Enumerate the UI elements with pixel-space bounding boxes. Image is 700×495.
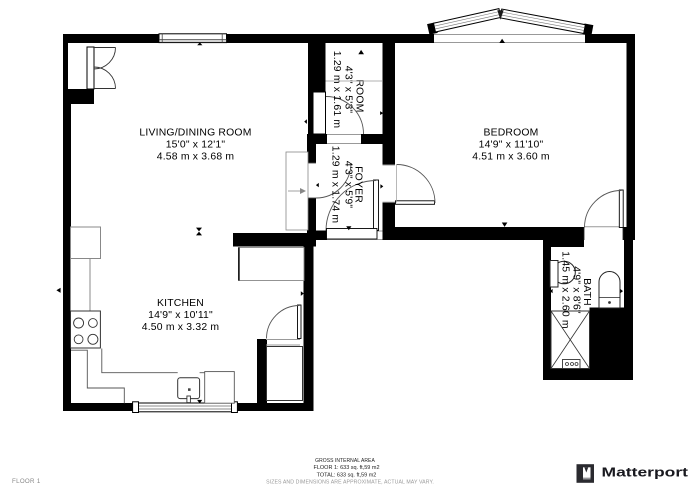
svg-text:4'3" x 5'3": 4'3" x 5'3"	[343, 66, 354, 114]
svg-text:14'9" x 10'11": 14'9" x 10'11"	[148, 310, 213, 321]
svg-text:4'9" x 8'6": 4'9" x 8'6"	[571, 266, 582, 314]
svg-text:4.51 m x 3.60 m: 4.51 m x 3.60 m	[472, 152, 550, 163]
svg-text:FLOOR 1: FLOOR 1	[12, 478, 41, 485]
svg-text:1.45 m x 2.60 m: 1.45 m x 2.60 m	[560, 251, 571, 329]
svg-text:FLOOR 1: 633 sq. ft,59 m2: FLOOR 1: 633 sq. ft,59 m2	[313, 465, 379, 471]
svg-text:ROOM: ROOM	[354, 79, 365, 112]
svg-text:GROSS INTERNAL AREA: GROSS INTERNAL AREA	[315, 458, 375, 464]
svg-text:BATH: BATH	[581, 278, 592, 306]
svg-text:14'9" x 11'10": 14'9" x 11'10"	[479, 140, 544, 151]
svg-text:BEDROOM: BEDROOM	[483, 128, 538, 139]
svg-text:Matterport: Matterport	[602, 465, 690, 479]
svg-text:LIVING/DINING ROOM: LIVING/DINING ROOM	[139, 128, 251, 139]
svg-text:15'0" x 12'1": 15'0" x 12'1"	[166, 140, 226, 151]
svg-text:TOTAL: 633 sq. ft,59 m2: TOTAL: 633 sq. ft,59 m2	[317, 472, 377, 478]
svg-text:4'3" x 5'9": 4'3" x 5'9"	[342, 161, 353, 209]
svg-text:SIZES AND DIMENSIONS ARE APPRO: SIZES AND DIMENSIONS ARE APPROXIMATE, AC…	[266, 479, 434, 485]
svg-text:4.58 m x 3.68 m: 4.58 m x 3.68 m	[157, 152, 235, 163]
svg-text:KITCHEN: KITCHEN	[157, 298, 204, 309]
svg-text:1.29 m x 1.61 m: 1.29 m x 1.61 m	[331, 51, 342, 129]
svg-text:1.29 m x 1.74 m: 1.29 m x 1.74 m	[330, 146, 341, 224]
svg-text:4.50 m x 3.32 m: 4.50 m x 3.32 m	[142, 322, 220, 333]
